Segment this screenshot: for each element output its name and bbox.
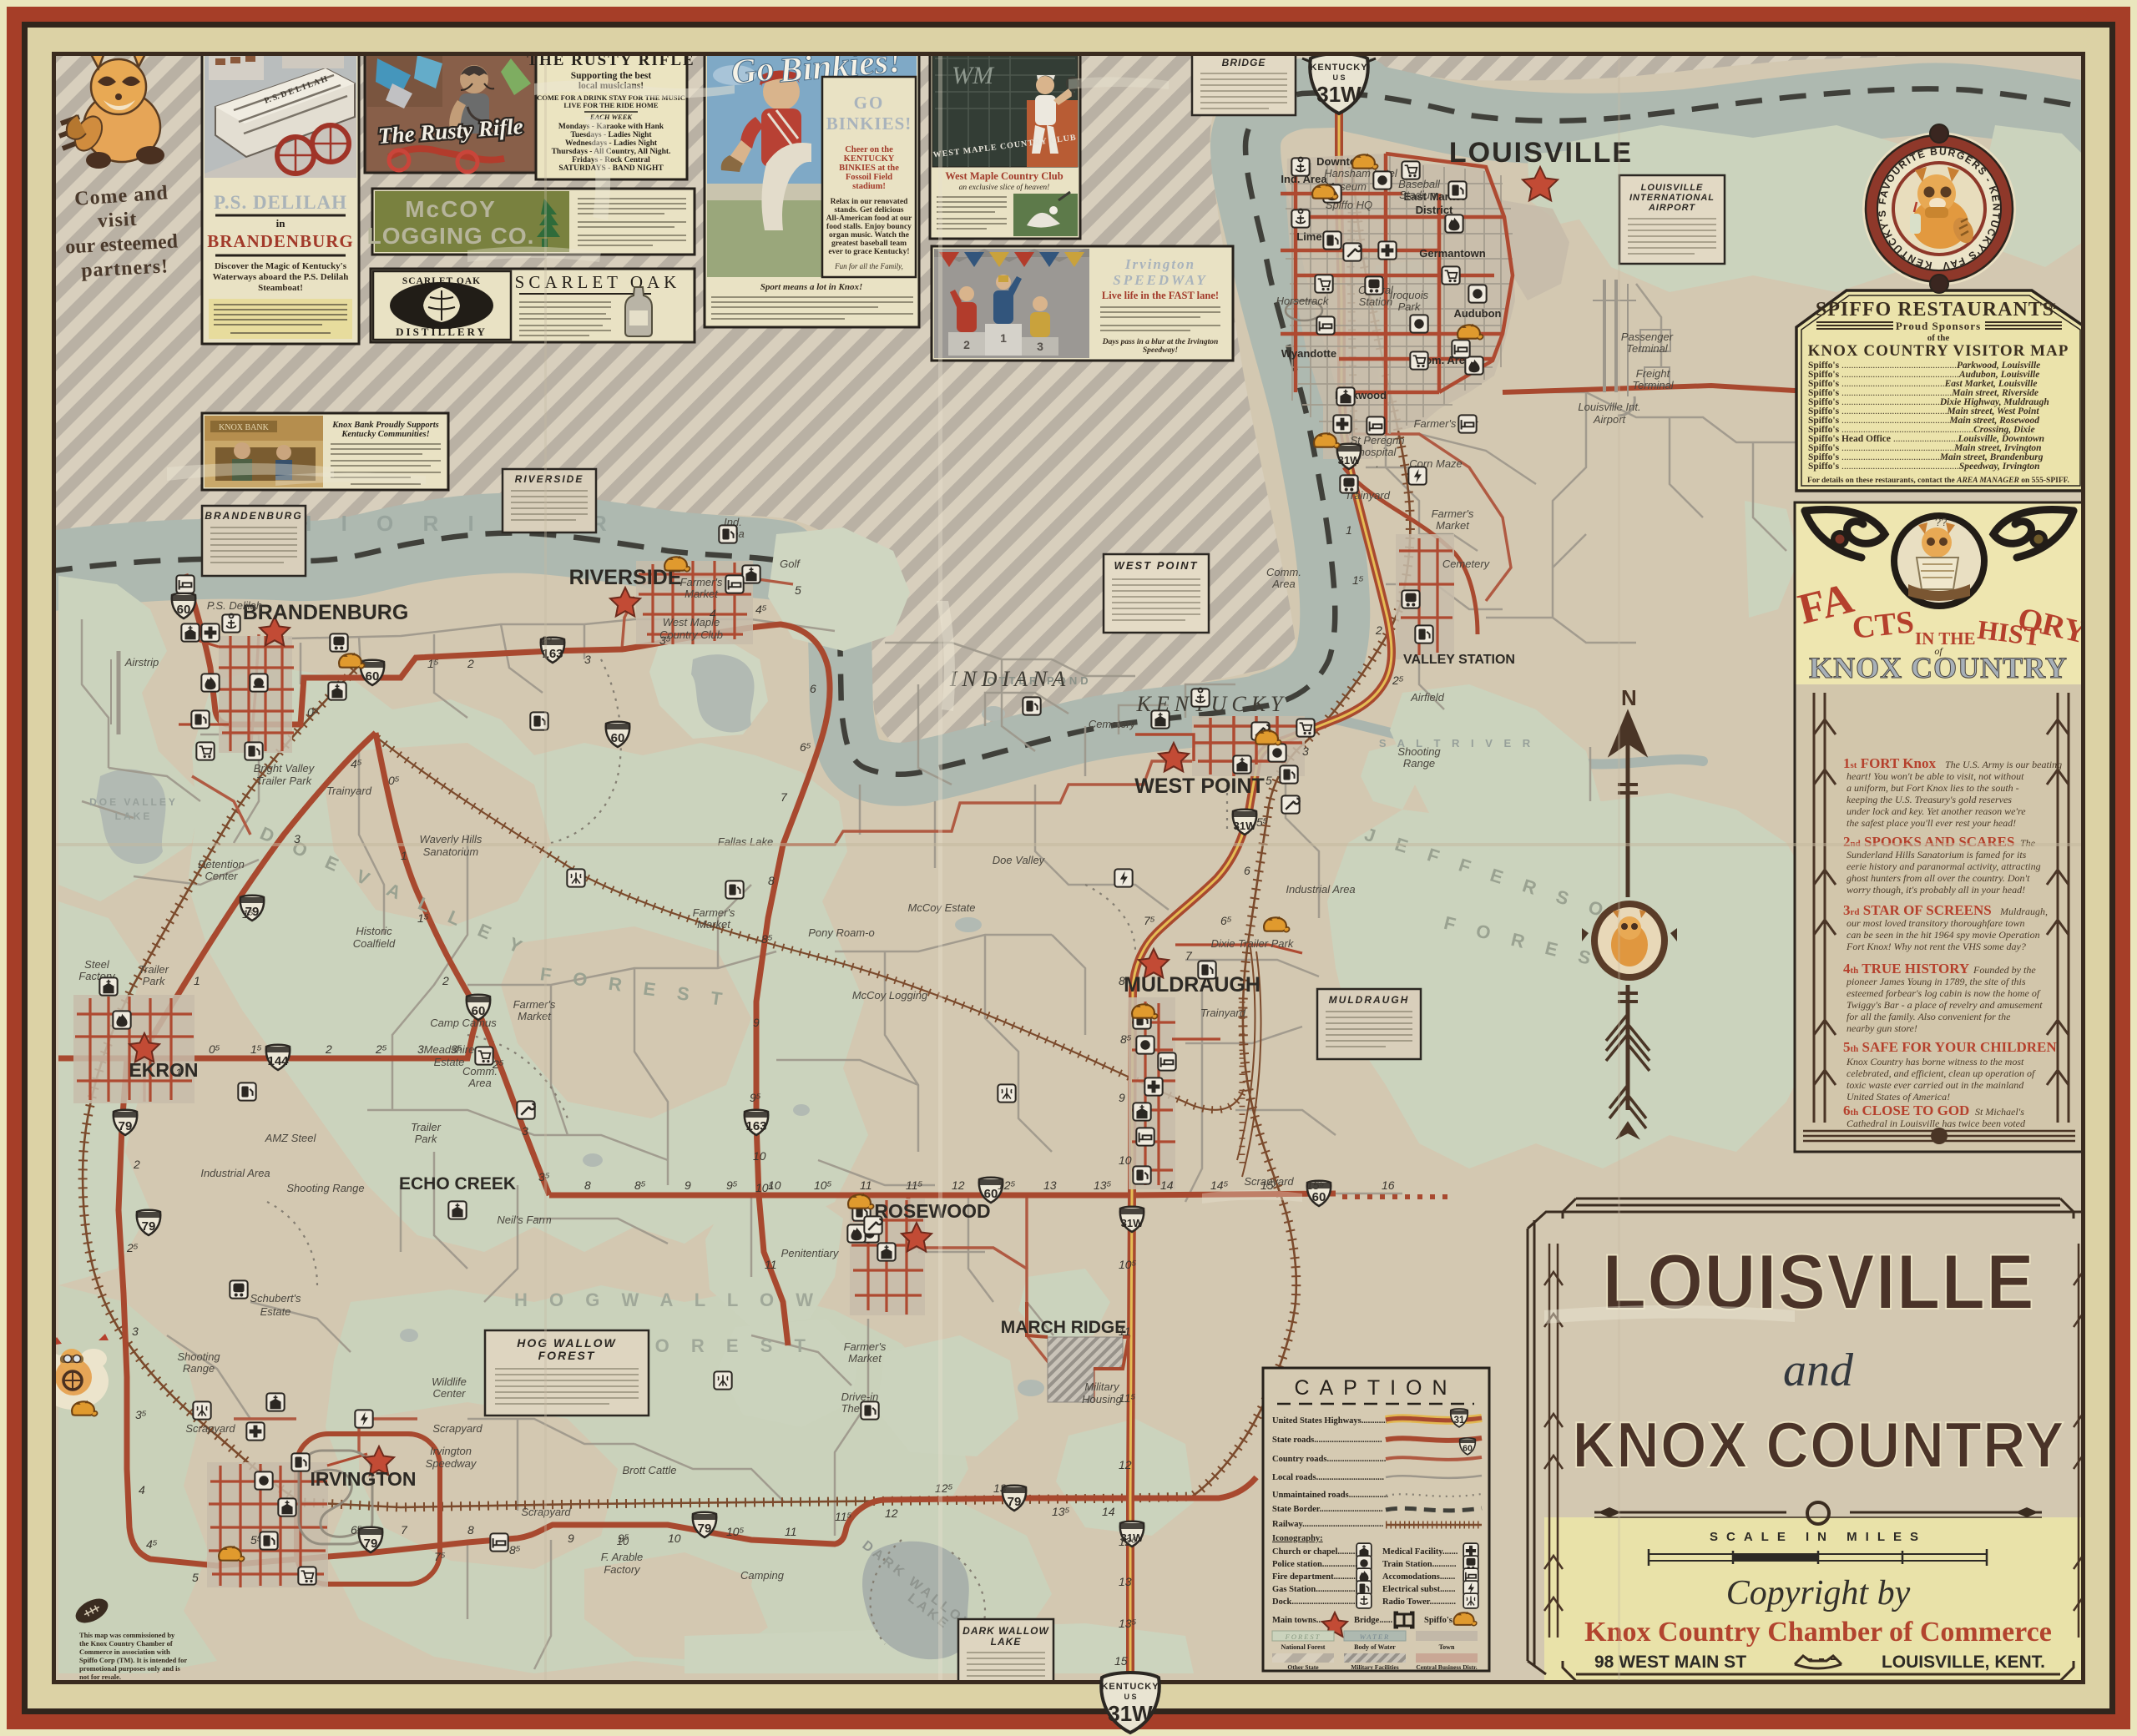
svg-text:4⁵: 4⁵ <box>351 757 362 770</box>
svg-text:Penitentiary: Penitentiary <box>781 1247 840 1259</box>
svg-text:13⁵: 13⁵ <box>1052 1505 1070 1518</box>
svg-text:Brott Cattle: Brott Cattle <box>622 1464 676 1476</box>
svg-text:2⁵: 2⁵ <box>1392 674 1404 687</box>
svg-text:Farmer's: Farmer's <box>1432 507 1474 520</box>
svg-text:8⁵: 8⁵ <box>634 1178 646 1192</box>
svg-text:Supporting the best: Supporting the best <box>571 71 652 81</box>
svg-text:Stadium: Stadium <box>1399 189 1439 201</box>
svg-text:1st FORT Knox: 1st FORT Knox <box>1843 755 1936 771</box>
svg-text:13: 13 <box>1043 1178 1057 1192</box>
svg-text:Park: Park <box>143 975 166 987</box>
svg-text:12: 12 <box>885 1506 898 1520</box>
svg-text:KNOX COUNTRY: KNOX COUNTRY <box>1809 651 2068 684</box>
svg-text:promotional purposes only and: promotional purposes only and is <box>79 1664 180 1673</box>
svg-text:3⁵: 3⁵ <box>451 1042 462 1056</box>
svg-text:8: 8 <box>768 874 775 887</box>
svg-text:0⁵: 0⁵ <box>388 774 400 787</box>
svg-text:LOUISVILLE, KENT.: LOUISVILLE, KENT. <box>1882 1653 2045 1672</box>
svg-text:Trailer: Trailer <box>139 963 169 976</box>
svg-text:Schubert's: Schubert's <box>250 1292 301 1305</box>
svg-text:SATURDAYS - BAND NIGHT: SATURDAYS - BAND NIGHT <box>558 164 664 173</box>
svg-text:LAKE: LAKE <box>115 810 153 822</box>
svg-text:hospital: hospital <box>1359 446 1397 458</box>
svg-text:WM: WM <box>952 62 995 89</box>
svg-text:St Michael's: St Michael's <box>1975 1106 2024 1118</box>
svg-text:Shooting: Shooting <box>177 1350 220 1363</box>
svg-text:Irvington: Irvington <box>430 1445 472 1457</box>
svg-text:IN THE: IN THE <box>1915 628 1976 648</box>
svg-text:Wyandotte: Wyandotte <box>1281 347 1336 360</box>
svg-text:FOREST: FOREST <box>1285 1633 1321 1641</box>
svg-text:5⁵: 5⁵ <box>1256 815 1268 829</box>
svg-text:8: 8 <box>467 1523 474 1537</box>
svg-text:1⁵: 1⁵ <box>1352 573 1364 587</box>
svg-text:SPEEDWAY: SPEEDWAY <box>1113 272 1207 288</box>
svg-text:2: 2 <box>1375 623 1382 637</box>
svg-text:??: ?? <box>1935 516 1947 528</box>
svg-text:12⁵: 12⁵ <box>1119 1535 1137 1548</box>
svg-text:1: 1 <box>1346 523 1352 537</box>
svg-text:Market: Market <box>518 1010 552 1022</box>
svg-text:Station: Station <box>1359 295 1392 308</box>
svg-text:DARK WALLOW: DARK WALLOW <box>962 1625 1049 1637</box>
svg-text:State Border..................: State Border............................… <box>1272 1505 1383 1514</box>
svg-text:Muldraugh,: Muldraugh, <box>1999 906 2048 917</box>
svg-text:Knox Country has borne witness: Knox Country has borne witness to the mo… <box>1846 1056 2024 1067</box>
svg-text:60: 60 <box>177 603 191 617</box>
svg-text:Copyright by: Copyright by <box>1726 1574 1911 1612</box>
svg-text:can be seen in the hit 1964 sp: can be seen in the hit 1964 spy movie Op… <box>1847 929 2040 941</box>
svg-text:Audubon: Audubon <box>1453 307 1501 320</box>
svg-text:All-American food at our: All-American food at our <box>826 214 912 223</box>
svg-text:1: 1 <box>1000 331 1007 345</box>
svg-text:Gas Station...................: Gas Station................... <box>1272 1585 1357 1594</box>
svg-text:Local roads...................: Local roads.............................… <box>1272 1473 1384 1482</box>
svg-text:Market: Market <box>848 1352 882 1365</box>
svg-text:Sanatorium: Sanatorium <box>423 845 479 858</box>
svg-text:VALLEY STATION: VALLEY STATION <box>1403 653 1515 667</box>
svg-text:KENTUCKY: KENTUCKY <box>844 154 895 164</box>
svg-text:Commerce in association with: Commerce in association with <box>79 1648 170 1656</box>
svg-text:AMZ Steel: AMZ Steel <box>265 1132 317 1144</box>
svg-text:3: 3 <box>132 1325 139 1338</box>
svg-text:4⁵: 4⁵ <box>755 603 767 616</box>
svg-text:11: 11 <box>860 1178 872 1192</box>
svg-text:3: 3 <box>522 1124 528 1138</box>
svg-text:12⁵: 12⁵ <box>935 1481 953 1495</box>
svg-text:12: 12 <box>952 1178 965 1192</box>
svg-text:toxic waste ever carried out i: toxic waste ever carried out in the main… <box>1847 1079 2024 1091</box>
svg-text:Radio Tower............: Radio Tower............ <box>1382 1597 1456 1607</box>
svg-text:15: 15 <box>1260 1178 1274 1192</box>
svg-text:Spiffo's .....................: Spiffo's ...............................… <box>1808 462 2040 472</box>
svg-text:IRVINGTON: IRVINGTON <box>311 1468 417 1490</box>
svg-text:S A L T R I V E R: S A L T R I V E R <box>1379 737 1534 749</box>
svg-text:2: 2 <box>467 657 474 670</box>
svg-text:KNOX COUNTRY: KNOX COUNTRY <box>1572 1408 2064 1481</box>
svg-text:10⁵: 10⁵ <box>726 1525 745 1538</box>
svg-text:Market: Market <box>685 588 719 600</box>
svg-text:2nd SPOOKS AND SCARES: 2nd SPOOKS AND SCARES <box>1843 834 2014 850</box>
svg-text:U S: U S <box>1124 1693 1136 1701</box>
svg-text:KNOX COUNTRY VISITOR MAP: KNOX COUNTRY VISITOR MAP <box>1808 342 2069 360</box>
svg-text:BRANDENBURG: BRANDENBURG <box>243 601 409 624</box>
svg-text:10⁵: 10⁵ <box>1119 1258 1137 1271</box>
svg-text:Center: Center <box>205 870 238 882</box>
svg-text:Fossoil Field: Fossoil Field <box>846 173 892 182</box>
svg-text:8⁵: 8⁵ <box>761 932 773 946</box>
svg-text:H O G W A L L O W: H O G W A L L O W <box>514 1289 821 1310</box>
svg-text:Church or chapel...........: Church or chapel........... <box>1272 1547 1362 1557</box>
svg-text:12: 12 <box>1119 1458 1132 1471</box>
svg-text:an exclusive slice of heaven!: an exclusive slice of heaven! <box>959 183 1050 192</box>
svg-text:3: 3 <box>584 653 591 666</box>
svg-text:ever to grace Kentucky!: ever to grace Kentucky! <box>828 248 909 256</box>
svg-text:Speedway!: Speedway! <box>1143 346 1179 355</box>
svg-text:Market: Market <box>697 918 731 931</box>
svg-text:1⁵: 1⁵ <box>250 1042 262 1056</box>
svg-text:BINKIES at the: BINKIES at the <box>839 164 899 173</box>
svg-text:10: 10 <box>768 1178 781 1192</box>
svg-text:For details on these restauran: For details on these restaurants, contac… <box>1807 477 2069 485</box>
svg-text:Trailer Park: Trailer Park <box>256 775 313 787</box>
svg-text:BRIDGE: BRIDGE <box>1222 57 1266 68</box>
svg-text:Horsetrack: Horsetrack <box>1276 295 1330 307</box>
svg-text:Electrical subst.......: Electrical subst....... <box>1382 1585 1456 1594</box>
svg-text:0⁵: 0⁵ <box>209 1042 220 1056</box>
svg-text:Pony Roam-o: Pony Roam-o <box>808 926 874 939</box>
svg-text:Proud Sponsors: Proud Sponsors <box>1896 320 1981 332</box>
svg-text:Area: Area <box>1271 578 1295 590</box>
svg-text:LOGGING CO.: LOGGING CO. <box>367 223 535 249</box>
svg-text:6th CLOSE TO GOD: 6th CLOSE TO GOD <box>1843 1103 1969 1118</box>
svg-text:15: 15 <box>1114 1654 1128 1668</box>
svg-text:HOG WALLOW: HOG WALLOW <box>517 1336 617 1350</box>
svg-text:31W: 31W <box>1316 82 1362 107</box>
svg-text:79: 79 <box>364 1537 378 1551</box>
svg-text:9⁵: 9⁵ <box>750 1091 761 1104</box>
svg-text:31W: 31W <box>1108 1701 1153 1726</box>
svg-text:Body of Water: Body of Water <box>1354 1643 1396 1651</box>
svg-text:9: 9 <box>568 1532 574 1545</box>
svg-text:DISTILLERY: DISTILLERY <box>396 325 488 338</box>
svg-text:Sport means a lot in Knox!: Sport means a lot in Knox! <box>760 282 863 292</box>
svg-text:Knox Bank Proudly Supports: Knox Bank Proudly Supports <box>331 421 439 430</box>
svg-text:greatest baseball team: greatest baseball team <box>831 240 907 248</box>
svg-text:2⁵: 2⁵ <box>126 1241 139 1254</box>
svg-text:31W: 31W <box>1338 454 1361 467</box>
svg-text:DOE VALLEY: DOE VALLEY <box>89 796 178 808</box>
svg-text:Relax in our renovated: Relax in our renovated <box>831 198 909 206</box>
svg-text:Dock..........................: Dock.............................. <box>1272 1597 1357 1607</box>
svg-text:RIVERSIDE: RIVERSIDE <box>515 473 584 485</box>
svg-text:Wildlife: Wildlife <box>432 1375 467 1388</box>
svg-text:Park: Park <box>1398 300 1422 313</box>
svg-text:5: 5 <box>795 583 801 597</box>
svg-text:Cathedral in Louisville has tw: Cathedral in Louisville has twice been v… <box>1847 1118 2026 1129</box>
svg-text:1: 1 <box>175 1066 182 1079</box>
svg-text:Accomodations.......: Accomodations....... <box>1382 1572 1456 1582</box>
svg-text:Thursdays - All Country, All N: Thursdays - All Country, All Night. <box>552 148 671 156</box>
svg-text:Mondays - Karaoke with Hank: Mondays - Karaoke with Hank <box>558 123 664 131</box>
svg-text:Airfield: Airfield <box>1410 691 1445 704</box>
svg-text:14: 14 <box>1160 1178 1174 1192</box>
svg-text:60: 60 <box>984 1187 998 1201</box>
svg-text:1: 1 <box>401 849 407 862</box>
svg-text:AIRPORT: AIRPORT <box>1648 203 1696 213</box>
svg-text:Twiggy's Bar - a place of reve: Twiggy's Bar - a place of revelry and am… <box>1847 999 2043 1011</box>
svg-text:4th TRUE HISTORY: 4th TRUE HISTORY <box>1843 961 1969 976</box>
svg-text:60: 60 <box>472 1004 486 1018</box>
svg-text:F. Arable: F. Arable <box>601 1551 644 1563</box>
svg-text:3⁵: 3⁵ <box>538 1170 550 1183</box>
svg-text:Main towns......: Main towns...... <box>1272 1616 1330 1625</box>
svg-text:13: 13 <box>1119 1575 1132 1588</box>
svg-text:and: and <box>1783 1345 1854 1396</box>
svg-text:BRANDENBURG: BRANDENBURG <box>205 510 302 522</box>
svg-text:Industrial Area: Industrial Area <box>200 1167 270 1179</box>
svg-text:3: 3 <box>417 1042 424 1056</box>
svg-text:Freight: Freight <box>1636 367 1671 380</box>
svg-text:Park: Park <box>415 1133 438 1145</box>
svg-text:4: 4 <box>710 607 716 620</box>
svg-text:14⁵: 14⁵ <box>1210 1178 1229 1192</box>
svg-text:Housing: Housing <box>1082 1393 1122 1405</box>
svg-text:98 WEST MAIN ST: 98 WEST MAIN ST <box>1594 1653 1746 1672</box>
svg-text:SCALE IN MILES: SCALE IN MILES <box>1710 1530 1927 1544</box>
svg-text:13: 13 <box>993 1481 1007 1495</box>
svg-text:Farmer's: Farmer's <box>693 906 735 919</box>
svg-text:Unmaintained roads............: Unmaintained roads.................. <box>1272 1491 1388 1500</box>
svg-text:3rd STAR OF SCREENS: 3rd STAR OF SCREENS <box>1843 902 1992 918</box>
svg-text:KENTUCKY: KENTUCKY <box>1101 1682 1159 1692</box>
svg-text:2: 2 <box>442 974 449 987</box>
svg-text:INTERNATIONAL: INTERNATIONAL <box>1629 193 1715 203</box>
svg-text:Waterways aboard the P.S. Deli: Waterways aboard the P.S. Delilah <box>213 272 349 282</box>
svg-text:5: 5 <box>1266 774 1272 787</box>
svg-text:SCARLET OAK: SCARLET OAK <box>402 276 481 286</box>
svg-text:Factory: Factory <box>604 1563 641 1576</box>
svg-text:in: in <box>276 217 286 230</box>
svg-text:2: 2 <box>133 1158 140 1171</box>
svg-text:ROSEWOOD: ROSEWOOD <box>874 1200 990 1222</box>
svg-text:U S: U S <box>1332 73 1345 82</box>
svg-text:79: 79 <box>1008 1495 1022 1509</box>
svg-text:Market: Market <box>1436 519 1470 532</box>
svg-text:West Maple Country Club: West Maple Country Club <box>945 170 1063 182</box>
svg-text:P.S. DELILAH: P.S. DELILAH <box>214 192 347 213</box>
svg-text:Dixie Trailer Park: Dixie Trailer Park <box>1211 937 1295 950</box>
svg-text:Cemetery: Cemetery <box>1089 718 1137 730</box>
svg-text:10: 10 <box>668 1532 681 1545</box>
svg-text:11⁵: 11⁵ <box>1119 1391 1136 1405</box>
svg-text:79: 79 <box>142 1219 156 1234</box>
svg-text:Camping: Camping <box>740 1569 785 1582</box>
svg-text:worry though, it's probably al: worry though, it's probably all in your … <box>1847 884 2025 896</box>
svg-text:TM: TM <box>2044 302 2056 310</box>
svg-text:3⁵: 3⁵ <box>135 1408 147 1421</box>
svg-text:Estate: Estate <box>260 1305 291 1318</box>
svg-text:WEST POINT: WEST POINT <box>1134 775 1265 798</box>
svg-text:13⁵: 13⁵ <box>1094 1178 1112 1192</box>
svg-text:MULDRAUGH: MULDRAUGH <box>1124 973 1260 997</box>
svg-text:MULDRAUGH: MULDRAUGH <box>1329 994 1410 1006</box>
svg-text:Germantown: Germantown <box>1419 247 1486 260</box>
svg-text:3⁵: 3⁵ <box>659 633 671 647</box>
svg-text:Tuesdays - Ladies Night: Tuesdays - Ladies Night <box>570 131 652 139</box>
svg-text:Railway.......................: Railway.................................… <box>1272 1520 1384 1529</box>
svg-text:4⁵: 4⁵ <box>146 1537 158 1551</box>
svg-text:WEST POINT: WEST POINT <box>1114 559 1199 572</box>
svg-text:7⁵: 7⁵ <box>1144 914 1155 927</box>
svg-text:Golf: Golf <box>780 558 801 570</box>
svg-text:Wednesdays - Ladies Night: Wednesdays - Ladies Night <box>565 139 658 148</box>
svg-text:Terminal: Terminal <box>1626 342 1668 355</box>
svg-text:9: 9 <box>1119 1091 1125 1104</box>
svg-text:under lock and key. Yet anothe: under lock and key. Yet another reason w… <box>1847 805 2026 817</box>
svg-text:Medical Facility.......: Medical Facility....... <box>1382 1547 1458 1557</box>
svg-text:11: 11 <box>785 1525 797 1538</box>
svg-text:0⁵: 0⁵ <box>307 705 319 719</box>
svg-text:Knox Country Chamber of Commer: Knox Country Chamber of Commerce <box>1584 1617 2052 1648</box>
svg-text:Airstrip: Airstrip <box>124 656 159 669</box>
svg-text:not for resale.: not for resale. <box>79 1673 121 1681</box>
svg-text:Industrial Area: Industrial Area <box>1286 883 1355 896</box>
svg-text:5th SAFE FOR YOUR CHILDREN: 5th SAFE FOR YOUR CHILDREN <box>1843 1039 2057 1055</box>
svg-text:KNOX BANK: KNOX BANK <box>219 423 270 432</box>
svg-text:9⁵: 9⁵ <box>726 1178 738 1192</box>
svg-text:7: 7 <box>1185 949 1193 962</box>
svg-text:Trainyard: Trainyard <box>1200 1007 1246 1019</box>
svg-text:United States Highways........: United States Highways............. <box>1272 1416 1390 1426</box>
svg-text:Cheer on the: Cheer on the <box>845 145 893 154</box>
svg-text:Live life in the FAST lane!: Live life in the FAST lane! <box>1102 290 1219 301</box>
svg-text:Passenger: Passenger <box>1621 331 1674 343</box>
svg-text:11: 11 <box>765 1258 777 1271</box>
svg-text:LAKE: LAKE <box>991 1636 1022 1648</box>
svg-text:United States of America!: United States of America! <box>1847 1091 1950 1103</box>
svg-text:CAPTION: CAPTION <box>1294 1376 1457 1400</box>
svg-text:79: 79 <box>698 1522 712 1536</box>
svg-text:Doe Valley: Doe Valley <box>993 854 1046 866</box>
svg-text:Go: Go <box>730 50 776 93</box>
svg-text:Range: Range <box>1403 757 1435 770</box>
svg-text:Louisville Int.: Louisville Int. <box>1578 401 1640 413</box>
svg-text:Speedway: Speedway <box>426 1457 477 1470</box>
svg-text:3: 3 <box>1037 340 1043 353</box>
svg-text:stadium!: stadium! <box>852 182 886 191</box>
svg-text:3: 3 <box>1302 744 1309 758</box>
svg-text:Detention: Detention <box>198 858 245 871</box>
svg-text:4: 4 <box>139 1483 145 1496</box>
svg-text:Airport: Airport <box>1593 413 1627 426</box>
svg-text:Camp Camus: Camp Camus <box>430 1017 497 1029</box>
svg-text:31: 31 <box>1454 1416 1465 1426</box>
svg-text:Fort Knox! Why not rent the VH: Fort Knox! Why not rent the VHS some day… <box>1846 941 2026 952</box>
svg-text:for all the family. Also conve: for all the family. Also convenient for … <box>1847 1011 2011 1022</box>
svg-text:79: 79 <box>119 1119 133 1133</box>
svg-text:WATER: WATER <box>1360 1633 1390 1641</box>
svg-text:keeping the U.S. Treasury's go: keeping the U.S. Treasury's gold reserve… <box>1847 794 2012 805</box>
svg-text:Train Station...........: Train Station........... <box>1382 1560 1457 1569</box>
svg-text:Cemetery: Cemetery <box>1442 558 1491 570</box>
svg-text:The U.S. Army is our beating: The U.S. Army is our beating <box>1945 759 2062 770</box>
svg-text:6⁵: 6⁵ <box>800 740 811 754</box>
svg-text:Bridge......: Bridge...... <box>1354 1616 1392 1625</box>
svg-text:Center: Center <box>432 1387 466 1400</box>
svg-text:12⁵: 12⁵ <box>998 1178 1016 1192</box>
svg-text:Spiffo Corp (TM). It is intend: Spiffo Corp (TM). It is intended for <box>79 1656 187 1664</box>
svg-text:144: 144 <box>267 1054 289 1068</box>
svg-text:Steamboat!: Steamboat! <box>258 283 303 293</box>
svg-text:11: 11 <box>1119 1325 1131 1338</box>
svg-text:11⁵: 11⁵ <box>906 1178 923 1192</box>
svg-text:Fridays - Rock Central: Fridays - Rock Central <box>572 156 650 164</box>
svg-text:food stalls. Enjoy bouncy: food stalls. Enjoy bouncy <box>826 223 912 231</box>
svg-text:nearby gun store!: nearby gun store! <box>1847 1022 1917 1034</box>
svg-text:7: 7 <box>401 1523 408 1537</box>
svg-text:Iconography:: Iconography: <box>1272 1534 1323 1543</box>
svg-text:Irvington: Irvington <box>1124 256 1195 272</box>
svg-text:Iroquois: Iroquois <box>1390 289 1429 301</box>
svg-text:Discover the Magic of Kentucky: Discover the Magic of Kentucky's <box>215 261 347 271</box>
svg-text:INDIANA: INDIANA <box>949 667 1071 691</box>
svg-text:esteemed forbear's log cabin i: esteemed forbear's log cabin is now the … <box>1847 987 2041 999</box>
svg-text:6⁵: 6⁵ <box>351 1523 362 1537</box>
svg-text:6: 6 <box>1244 864 1250 877</box>
svg-text:CTS: CTS <box>1851 604 1916 645</box>
svg-text:Historic: Historic <box>356 925 392 937</box>
svg-text:60: 60 <box>611 731 625 745</box>
svg-text:eerie history and paranormal a: eerie history and paranormal activity, a… <box>1847 860 2041 872</box>
svg-text:Military Facilities: Military Facilities <box>1351 1663 1398 1671</box>
svg-text:10: 10 <box>1119 1153 1132 1167</box>
svg-text:.: . <box>1376 457 1379 470</box>
svg-text:2⁵: 2⁵ <box>375 1042 387 1056</box>
svg-text:visit: visit <box>97 209 138 232</box>
svg-text:celebrated, and efficient, cle: celebrated, and efficient, clean up oper… <box>1847 1067 2036 1079</box>
svg-text:1⁵: 1⁵ <box>417 911 429 925</box>
svg-text:9: 9 <box>753 1016 760 1029</box>
svg-text:Farmer's: Farmer's <box>844 1340 887 1353</box>
svg-text:SCARLET OAK: SCARLET OAK <box>515 272 681 292</box>
svg-text:Terminal: Terminal <box>1632 379 1674 391</box>
svg-text:the Knox Country Chamber of: the Knox Country Chamber of <box>79 1639 173 1648</box>
svg-text:10: 10 <box>753 1149 766 1163</box>
svg-text:60: 60 <box>366 669 380 684</box>
svg-text:31W: 31W <box>1234 820 1256 832</box>
svg-text:ghost hunters from all over th: ghost hunters from all over the country.… <box>1847 872 2030 884</box>
svg-text:5: 5 <box>192 1571 199 1584</box>
svg-text:7⁵: 7⁵ <box>434 1550 446 1563</box>
svg-text:F O R E S T: F O R E S T <box>622 1335 814 1356</box>
svg-text:8⁵: 8⁵ <box>1120 1032 1132 1046</box>
svg-text:Trailer: Trailer <box>411 1121 442 1133</box>
svg-text:Police station................: Police station................. <box>1272 1560 1360 1569</box>
svg-text:Days pass in a blur at the Irv: Days pass in a blur at the Irvington <box>1102 338 1219 346</box>
svg-text:stands. Get delicious: stands. Get delicious <box>834 206 903 214</box>
svg-text:Kentucky Communities!: Kentucky Communities! <box>341 430 429 439</box>
svg-text:Farmer's: Farmer's <box>680 576 723 588</box>
svg-text:GO: GO <box>854 93 885 113</box>
svg-text:National Forest: National Forest <box>1281 1643 1326 1651</box>
svg-text:the safest place you'll ever r: the safest place you'll ever rest your h… <box>1847 817 2016 829</box>
svg-text:2: 2 <box>963 338 970 351</box>
svg-text:pioneer James Young in 1789, t: pioneer James Young in 1789, the site of… <box>1846 976 2026 987</box>
svg-text:Country roads.................: Country roads........................... <box>1272 1455 1387 1464</box>
svg-text:Scrapyard: Scrapyard <box>185 1422 235 1435</box>
svg-text:Range: Range <box>183 1362 215 1375</box>
